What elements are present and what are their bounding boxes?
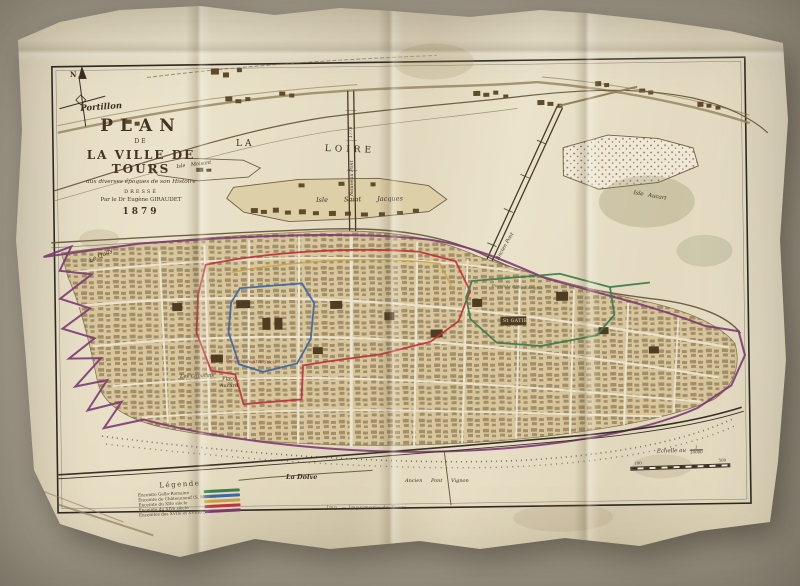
title-de: DE [58, 138, 224, 145]
label-nouveau-pont: Nouveau Pont [349, 160, 355, 196]
scale-box: Echelle au 1 10000 100 500 [630, 444, 731, 471]
label-ancien-pont: Ancien Pont [495, 232, 515, 261]
label-loire: LOIRE [325, 144, 376, 156]
label-enceinte-xiv: Enceinte du XIVe Siècle [226, 358, 277, 365]
scale-ratio: 1 10000 [690, 445, 703, 455]
title-year: 1879 [58, 207, 224, 217]
scale-label: Echelle au [657, 448, 686, 455]
label-isle-saint-jacques: Isle Saint Jacques [316, 194, 403, 204]
legend-chip-purple [205, 509, 241, 513]
paper-shadow: PLAN DE LA VILLE DE TOURS aux diverses é… [0, 0, 800, 586]
label-isle-aucart: Isle Aucart [633, 190, 667, 202]
label-les-capucins: Les Capucins [180, 373, 214, 380]
map-title: PLAN [58, 116, 224, 136]
label-nouveau-pont-date: 1778 [349, 127, 354, 138]
label-portillon: Portillon [80, 101, 122, 114]
label-ancien-pont-vignon: Ancien Pont Vignon [405, 478, 469, 484]
map-labels: PLAN DE LA VILLE DE TOURS aux diverses é… [0, 0, 800, 586]
scale-tick-left: 100 [634, 460, 642, 465]
photo-of-folded-map: PLAN DE LA VILLE DE TOURS aux diverses é… [0, 0, 800, 586]
scale-tick-right: 500 [718, 457, 726, 462]
map-paper: PLAN DE LA VILLE DE TOURS aux diverses é… [0, 0, 800, 586]
label-le-quay: Le Quay [88, 247, 114, 264]
title-author: Par le Dr Eugène GIRAUDET [58, 197, 224, 203]
label-enceinte-gallo-romaine: Enceinte Gallo-Romaine [492, 283, 543, 291]
label-st-gatien: St GATIEN [503, 319, 532, 324]
label-place-aucard: Place Aucard [216, 376, 242, 389]
scale-ratio-denominator: 10000 [690, 450, 703, 455]
label-la: LA [236, 139, 254, 149]
title-subtitle: aux diverses époques de son Histoire [58, 179, 224, 185]
title-dresse: DRESSÉ [58, 189, 224, 195]
compass-north-letter: N [70, 70, 76, 79]
